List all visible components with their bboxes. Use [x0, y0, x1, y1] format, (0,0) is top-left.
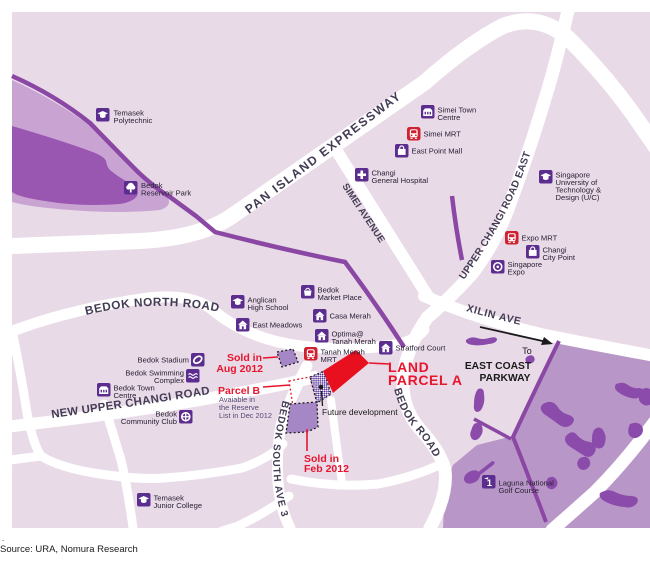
svg-text:Design (U/C): Design (U/C): [556, 193, 600, 202]
svg-text:1: 1: [487, 478, 493, 489]
svg-text:Stratford Court: Stratford Court: [396, 344, 447, 353]
svg-text:Centre: Centre: [438, 113, 461, 122]
svg-text:Bedok Stadium: Bedok Stadium: [138, 356, 190, 365]
svg-text:Expo MRT: Expo MRT: [522, 234, 558, 243]
svg-text:Complex: Complex: [154, 376, 184, 385]
svg-text:Simei MRT: Simei MRT: [424, 130, 462, 139]
svg-text:Casa Merah: Casa Merah: [330, 312, 371, 321]
svg-text:Polytechnic: Polytechnic: [114, 116, 153, 125]
svg-text:Market Place: Market Place: [318, 293, 362, 302]
svg-text:PARKWAY: PARKWAY: [480, 373, 531, 384]
svg-text:Feb 2012: Feb 2012: [304, 463, 349, 475]
svg-text:Junior College: Junior College: [154, 501, 203, 510]
svg-text:List in Dec 2012: List in Dec 2012: [219, 411, 272, 420]
svg-text:High School: High School: [248, 303, 289, 312]
svg-text:PARCEL A: PARCEL A: [388, 372, 463, 388]
svg-text:Tanah Merah: Tanah Merah: [332, 337, 376, 346]
svg-text:MRT: MRT: [321, 355, 338, 364]
svg-text:General Hospital: General Hospital: [372, 176, 429, 185]
svg-text:Centre: Centre: [114, 391, 137, 400]
svg-text:Expo: Expo: [508, 268, 525, 277]
svg-text:Community Club: Community Club: [121, 417, 177, 426]
svg-text:Reservoir Park: Reservoir Park: [141, 189, 191, 198]
svg-text:Future development: Future development: [322, 407, 398, 417]
svg-text:Aug 2012: Aug 2012: [216, 363, 263, 375]
svg-text:City Point: City Point: [543, 253, 576, 262]
svg-text:.: .: [2, 534, 4, 543]
svg-text:East Meadows: East Meadows: [253, 321, 303, 330]
svg-text:Source: URA, Nomura Research: Source: URA, Nomura Research: [0, 544, 138, 555]
svg-text:Golf Course: Golf Course: [499, 486, 540, 495]
svg-text:To: To: [522, 346, 532, 356]
svg-text:East Point Mall: East Point Mall: [412, 147, 463, 156]
svg-text:EAST COAST: EAST COAST: [465, 361, 532, 372]
